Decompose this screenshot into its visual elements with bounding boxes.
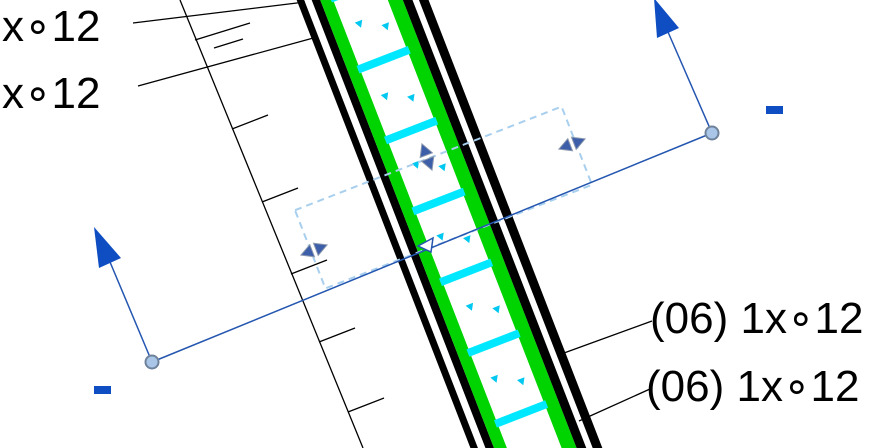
grip-point[interactable] xyxy=(706,127,719,140)
grip-point[interactable] xyxy=(146,356,159,369)
span-arrow-shaft xyxy=(668,32,712,133)
stretch-handle-right-icon[interactable] xyxy=(314,243,328,255)
rebar-tag-right-2[interactable]: (06) 1x∘12 xyxy=(646,365,859,409)
span-arrow-shaft xyxy=(110,262,152,362)
flip-arrow-icon[interactable] xyxy=(418,238,433,252)
stretch-handle-right-icon[interactable] xyxy=(572,137,586,149)
rebar-tag-left-1[interactable]: x∘12 xyxy=(2,5,100,49)
minus-handle[interactable] xyxy=(766,106,783,114)
stretch-handle-down-icon[interactable] xyxy=(422,157,434,171)
rebar-tag-right-1[interactable]: (06) 1x∘12 xyxy=(650,297,863,341)
span-direction-arrow-icon[interactable] xyxy=(94,227,121,268)
span-direction-arrow-icon[interactable] xyxy=(654,0,679,38)
rebar-set-selection-box xyxy=(295,107,592,289)
stretch-handle-left-icon[interactable] xyxy=(301,245,315,257)
stretch-handle-up-icon[interactable] xyxy=(420,144,432,158)
stretch-handle-left-icon[interactable] xyxy=(559,139,573,151)
drawing-canvas: x∘12 x∘12 (06) 1x∘12 (06) 1x∘12 xyxy=(0,0,878,448)
rebar-tag-left-2[interactable]: x∘12 xyxy=(2,72,100,116)
minus-handle[interactable] xyxy=(94,386,111,394)
